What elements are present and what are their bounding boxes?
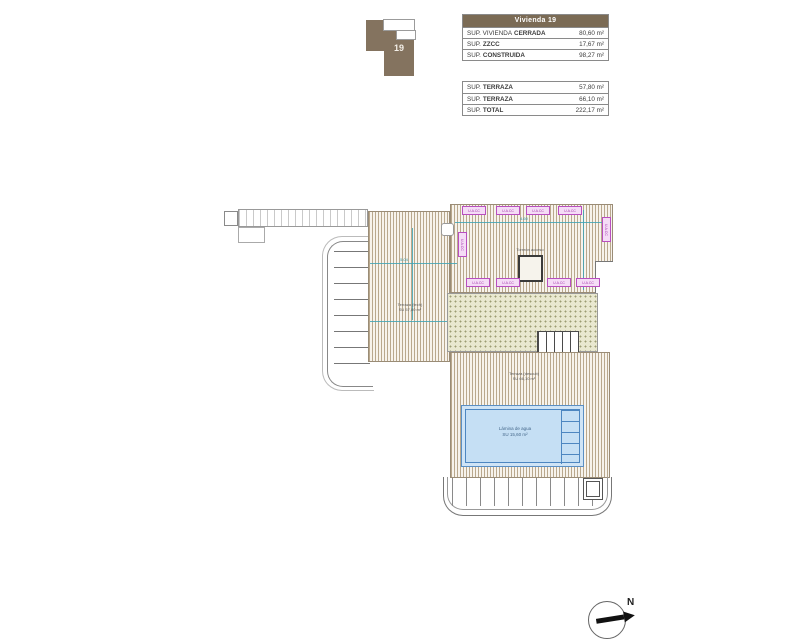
table-row: SUP. ZZCC 17,67 m² [463,38,608,49]
row-label-prefix: SUP. [467,41,481,48]
row-label-name: TERRAZA [483,84,579,91]
upper-left-terrace-deck [368,211,450,362]
row-label-name: CONSTRUIDA [483,52,579,59]
row-label-name: ZZCC [483,41,579,48]
table-row: SUP. CONSTRUIDA 98,27 m² [463,49,608,60]
north-arrow: N [585,595,645,640]
north-label: N [627,597,634,608]
bottom-equipment-box [583,478,603,500]
skylight-label: Torreón acceso [495,247,565,252]
skylight [518,255,543,282]
walkway [238,209,368,227]
walkway-entry-square [224,211,238,226]
row-label-name: TOTAL [483,107,576,114]
row-label-name: TERRAZA [483,96,579,103]
table-row: SUP. TERRAZA 66,10 m² [463,93,608,104]
floor-plan-sheet: 19 Vivienda 19 SUP. VIVIENDA CERRADA 80,… [0,0,800,640]
bottom-pergola-louvers [452,478,603,506]
row-value: 17,67 m² [579,41,604,48]
ac-unit-label: U.A.CC [466,278,490,287]
row-label-prefix: SUP. [467,52,481,59]
row-label-prefix: SUP. [467,96,481,103]
key-plan-unit-number: 19 [384,43,414,53]
roof-detail-box [441,223,454,236]
key-plan: 19 [355,10,445,90]
table-row: SUP. TOTAL 222,17 m² [463,104,608,115]
ac-unit-label: U.A.CC [462,206,486,215]
upper-terrace-label: Terraza (tech) SU 57,80 m² [375,302,445,312]
row-value: 66,10 m² [579,96,604,103]
lower-terrace-label: Terraza (descub) SU 66,10 m² [484,371,564,381]
table-header: Vivienda 19 [463,15,608,27]
ac-unit-label: U.A.CC [576,278,600,287]
key-plan-building-outline-2 [396,30,416,40]
pool-label: Lámina de agua SU 15,60 m² [465,426,565,438]
row-value: 57,80 m² [579,84,604,91]
ac-unit-label: U.A.CC [526,206,550,215]
built-area-table: Vivienda 19 SUP. VIVIENDA CERRADA 80,60 … [462,14,609,61]
ac-unit-label: U.A.CC [496,278,520,287]
row-value: 80,60 m² [579,30,604,37]
pool-label-line2: SU 15,60 m² [465,432,565,438]
row-label-prefix: SUP. VIVIENDA [467,30,512,37]
ac-unit-label: U.A.CC [496,206,520,215]
dimension-line [370,263,457,264]
walkway-landing [238,227,265,243]
row-value: 98,27 m² [579,52,604,59]
table-row: SUP. TERRAZA 57,80 m² [463,82,608,93]
north-arrow-pointer [596,604,638,632]
left-wing-slats [334,251,370,379]
row-value: 222,17 m² [576,107,604,114]
table-row: SUP. VIVIENDA CERRADA 80,60 m² [463,27,608,38]
row-label-prefix: SUP. [467,84,481,91]
dimension-text: 4.60 [514,216,534,221]
dimension-text: 5.04 [394,257,414,262]
upper-terrace-label-line2: SU 57,80 m² [375,307,445,312]
ac-unit-label: U.A.CC [458,232,467,257]
row-label-prefix: SUP. [467,107,481,114]
roof-step-notch [595,261,613,293]
ac-unit-label: U.A.CC [558,206,582,215]
lower-terrace-label-line2: SU 66,10 m² [484,376,564,381]
ac-unit-label: U.A.CC [547,278,571,287]
terrace-area-table: SUP. TERRAZA 57,80 m² SUP. TERRAZA 66,10… [462,81,609,116]
ac-unit-label: U.A.CC [602,217,611,242]
bottom-equipment-box-inner [586,481,600,497]
dimension-line [455,222,610,223]
row-label-name: CERRADA [514,30,579,37]
